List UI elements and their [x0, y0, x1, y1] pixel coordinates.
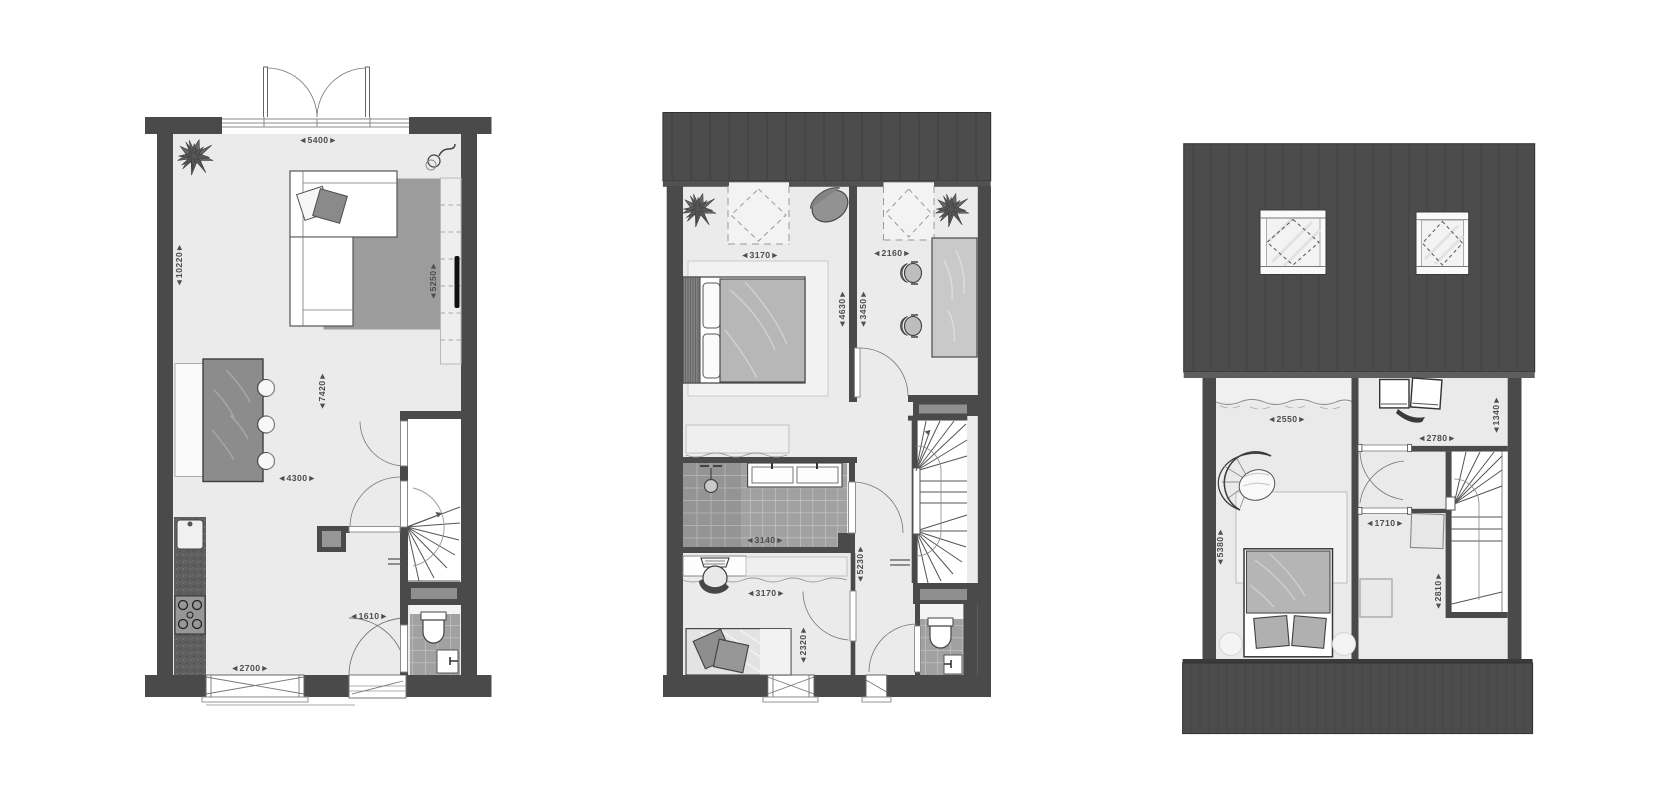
svg-text:◄3170►: ◄3170►	[747, 588, 786, 598]
svg-text:◄2700►: ◄2700►	[231, 663, 270, 673]
svg-text:◄1610►: ◄1610►	[350, 611, 389, 621]
svg-text:◄4300►: ◄4300►	[278, 473, 317, 483]
svg-text:◄2320►: ◄2320►	[798, 626, 808, 665]
svg-text:◄2550►: ◄2550►	[1268, 414, 1307, 424]
svg-text:◄3450►: ◄3450►	[858, 290, 868, 329]
svg-text:◄3170►: ◄3170►	[741, 250, 780, 260]
svg-text:◄2810►: ◄2810►	[1433, 572, 1443, 611]
svg-text:◄5400►: ◄5400►	[299, 135, 338, 145]
svg-text:◄10220►: ◄10220►	[174, 243, 184, 287]
svg-text:◄1340►: ◄1340►	[1491, 396, 1501, 435]
svg-text:◄1710►: ◄1710►	[1366, 518, 1405, 528]
svg-text:◄2780►: ◄2780►	[1418, 433, 1457, 443]
svg-text:◄7420►: ◄7420►	[317, 372, 327, 411]
svg-text:◄4630►: ◄4630►	[837, 290, 847, 329]
svg-text:◄5380►: ◄5380►	[1215, 528, 1225, 567]
svg-text:◄5250►: ◄5250►	[428, 262, 438, 301]
svg-text:◄5230►: ◄5230►	[855, 545, 865, 584]
svg-text:◄2160►: ◄2160►	[873, 248, 912, 258]
svg-text:◄3140►: ◄3140►	[746, 535, 785, 545]
